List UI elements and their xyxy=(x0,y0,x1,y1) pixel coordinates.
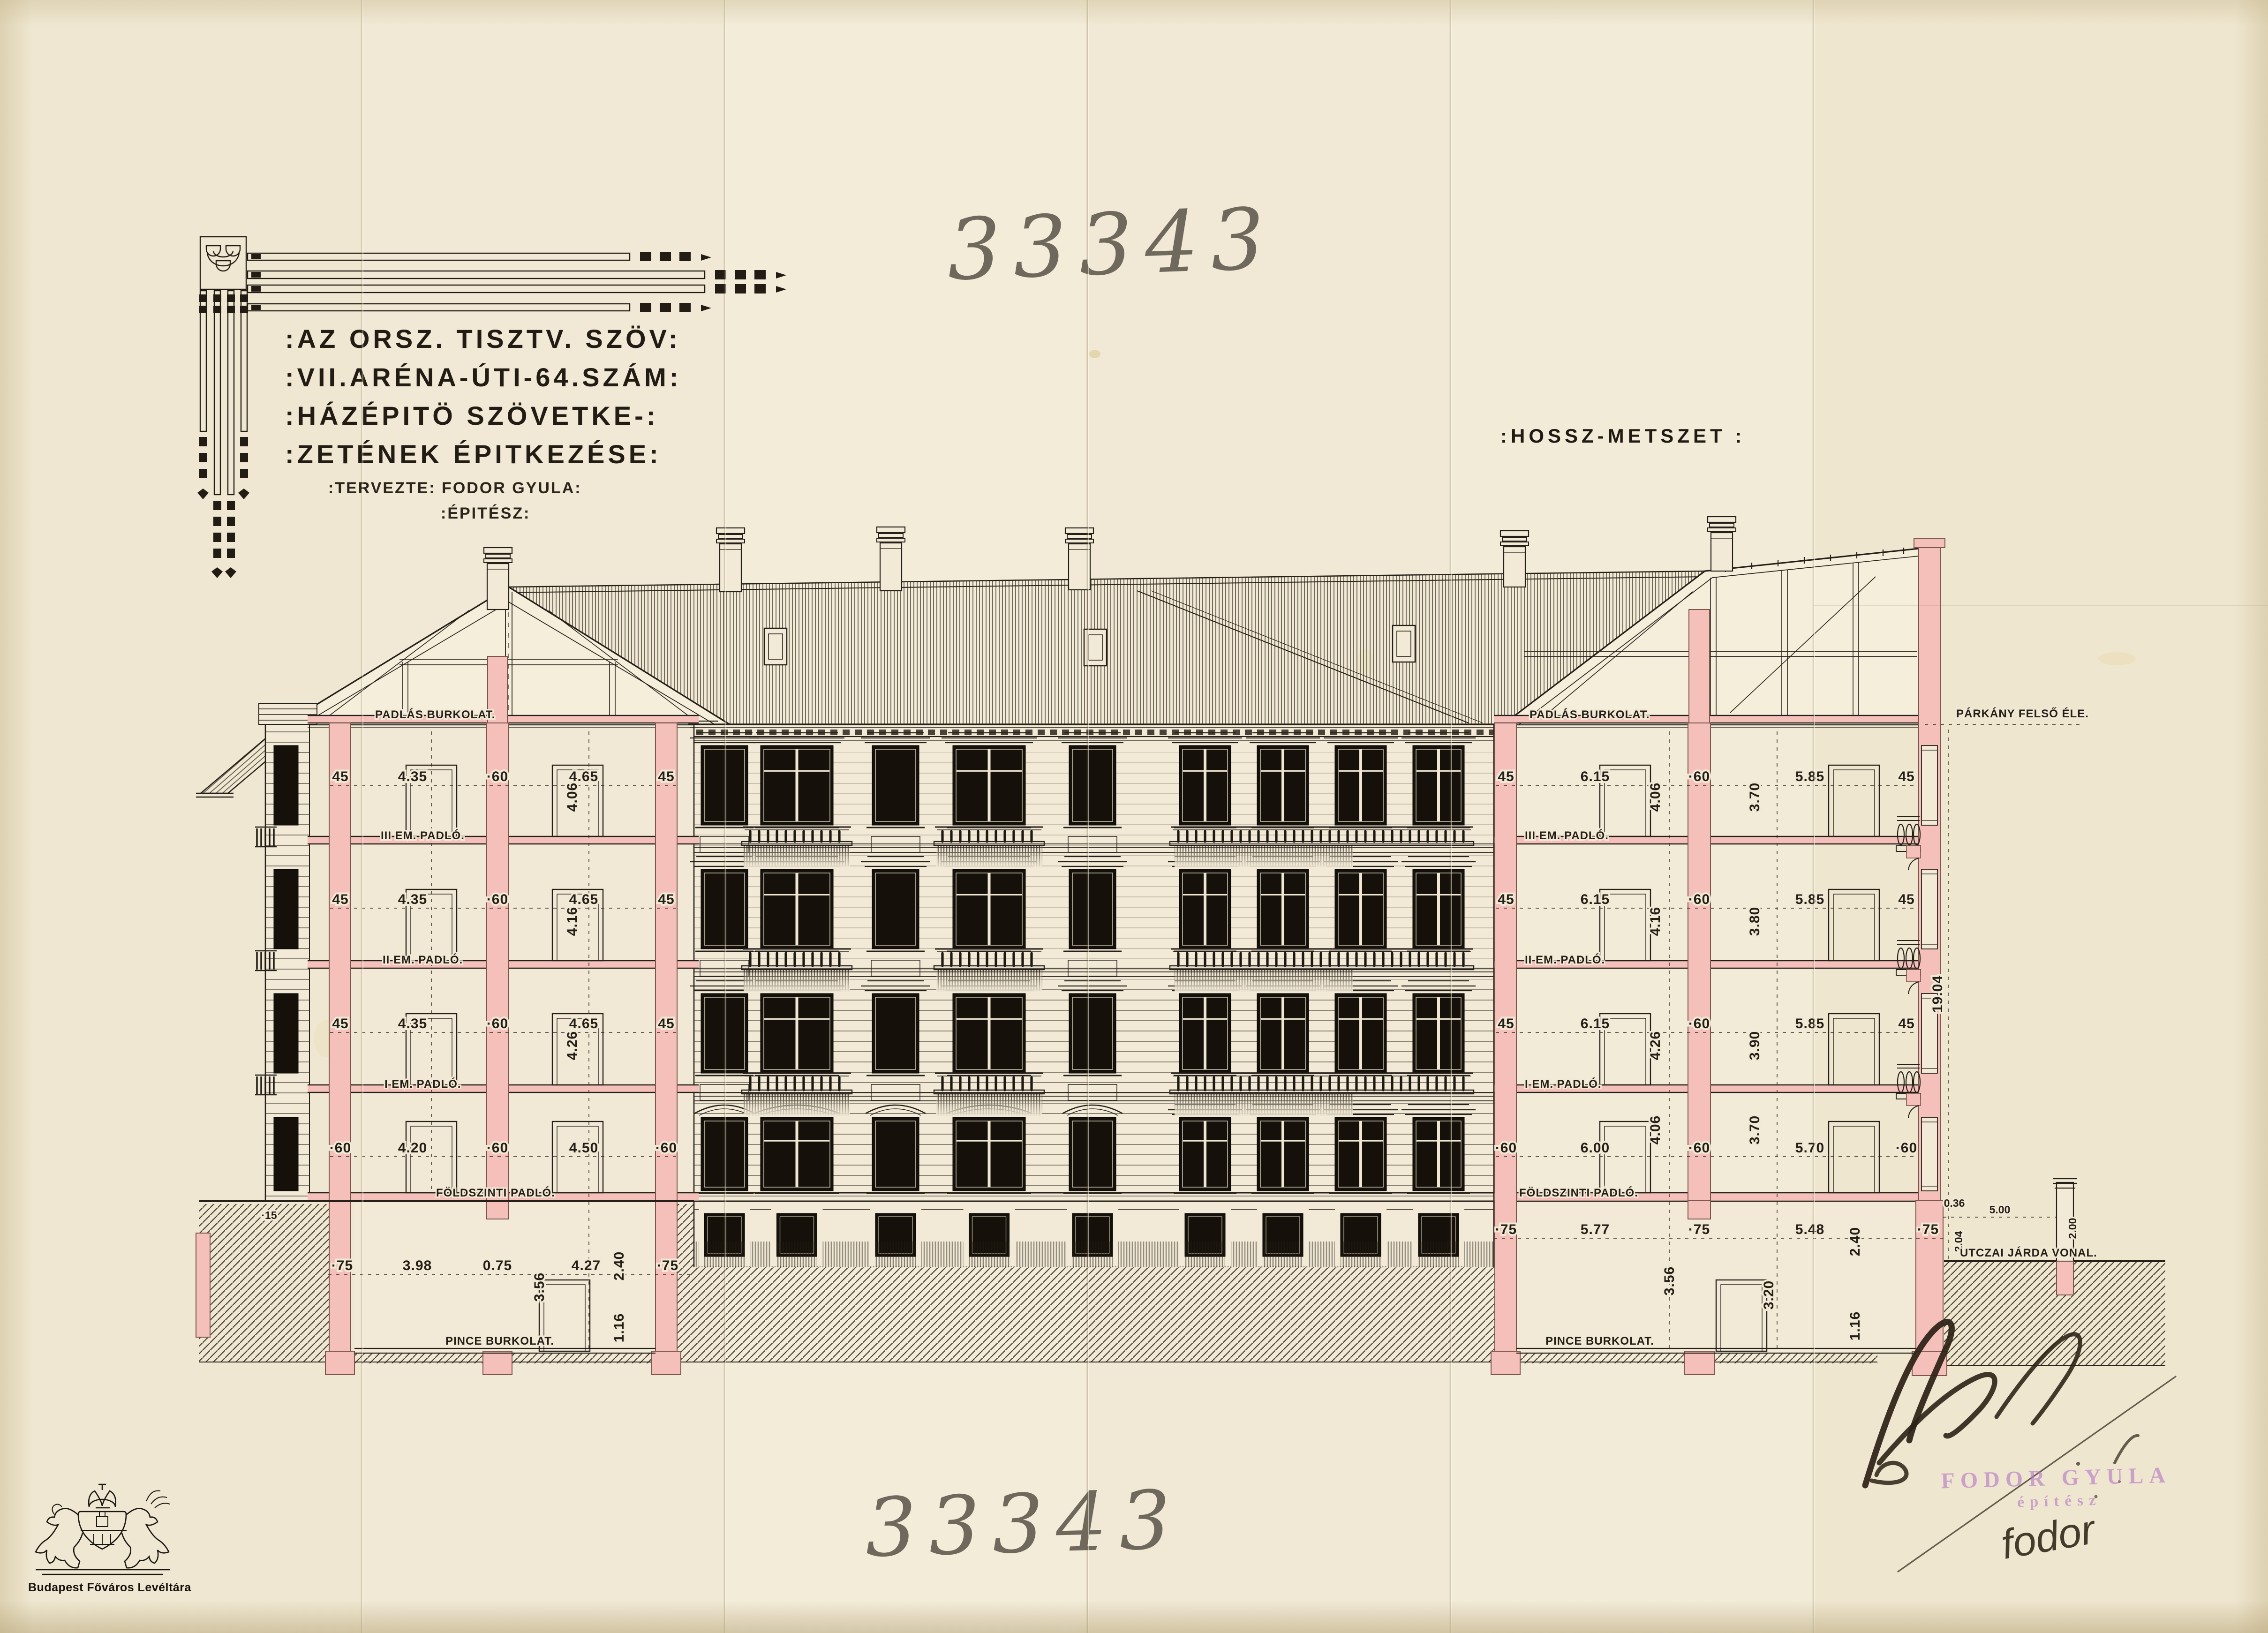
floor-label: PADLÁS BURKOLAT. xyxy=(375,708,495,721)
dim: ·60 xyxy=(1688,1016,1710,1031)
dim: 4.35 xyxy=(398,892,427,907)
dim: 4.35 xyxy=(398,1016,427,1031)
chimney xyxy=(1500,531,1529,587)
facade-window xyxy=(942,981,1037,1076)
facade-window xyxy=(866,1105,926,1267)
facade-window xyxy=(749,981,844,1076)
dim: 6.15 xyxy=(1581,1016,1610,1031)
sidewalk-label: UTCZAI JÁRDA VONAL. xyxy=(1960,1246,2097,1259)
facade-window xyxy=(1168,857,1242,951)
facade-window xyxy=(749,733,844,828)
dim: 45 xyxy=(332,769,348,784)
dim: ·75 xyxy=(1917,1222,1939,1237)
dim: 3.90 xyxy=(1747,1031,1763,1060)
dim: ·60 xyxy=(1896,1140,1917,1156)
dim: 4.06 xyxy=(565,783,580,812)
title-line-2: :VII.ARÉNA-ÚTI-64.SZÁM: xyxy=(285,362,681,392)
floor-label: FÖLDSZINTI PADLÓ. xyxy=(436,1186,555,1199)
title-role: :ÉPITÉSZ: xyxy=(441,504,530,522)
facade-window xyxy=(1062,1105,1123,1267)
dim: 5.77 xyxy=(1581,1222,1610,1237)
dim: 0.75 xyxy=(483,1258,512,1273)
floor-label: PINCE BURKOLAT. xyxy=(1545,1335,1654,1347)
floor-label: PINCE BURKOLAT. xyxy=(445,1335,554,1347)
dim: 5.85 xyxy=(1795,892,1824,907)
dim: ·60 xyxy=(487,1140,508,1156)
archive-number-top: 33343 xyxy=(946,190,1278,299)
dim: 4.65 xyxy=(569,892,598,907)
dim: 3.98 xyxy=(403,1258,432,1273)
wall-window-slot xyxy=(1921,745,1937,825)
facade-window xyxy=(1246,857,1320,951)
dim: 3.56 xyxy=(532,1272,547,1302)
facade-window xyxy=(1401,857,1476,951)
dim: 4.27 xyxy=(572,1258,601,1273)
dim: 6.15 xyxy=(1581,892,1610,907)
floor-label: FÖLDSZINTI PADLÓ. xyxy=(1519,1186,1638,1199)
dim: 45 xyxy=(1498,892,1514,907)
facade-window xyxy=(1324,857,1398,951)
facade-window xyxy=(1324,981,1398,1076)
dim: 3.70 xyxy=(1747,1115,1763,1144)
chimney xyxy=(1708,517,1736,571)
dim: ·60 xyxy=(1688,769,1710,784)
dim: 45 xyxy=(1898,1016,1914,1031)
floor-label: PADLÁS BURKOLAT. xyxy=(1530,708,1650,721)
dim: ·60 xyxy=(487,769,508,784)
dim: 45 xyxy=(1498,1016,1514,1031)
dim: ·75 xyxy=(1495,1222,1517,1237)
left-facade-window xyxy=(274,869,298,949)
archive-number-bottom: 33343 xyxy=(864,1473,1184,1575)
dim: ·60 xyxy=(330,1140,351,1156)
dim: 4.26 xyxy=(565,1031,580,1060)
dim: 4.65 xyxy=(569,1016,598,1031)
dim: 4.50 xyxy=(569,1140,598,1156)
dim: 5.70 xyxy=(1795,1140,1824,1156)
dim: 5.48 xyxy=(1795,1222,1824,1237)
dim: ·60 xyxy=(487,892,508,907)
dim: ·60 xyxy=(1688,1140,1710,1156)
left-facade-window xyxy=(274,745,298,825)
dim: 5.85 xyxy=(1795,1016,1824,1031)
dim: 3.20 xyxy=(1761,1280,1777,1309)
title-line-3: :HÁZÉPITÖ SZÖVETKE-: xyxy=(285,401,658,430)
dim: 4.35 xyxy=(398,769,427,784)
dim: ·75 xyxy=(332,1258,353,1273)
facade-window xyxy=(1324,733,1398,828)
paper-stain xyxy=(1089,350,1100,358)
facade-window xyxy=(942,733,1037,828)
cut-wall xyxy=(1495,723,1516,1353)
facade-window xyxy=(1401,981,1476,1076)
dim: ·75 xyxy=(1688,1222,1710,1237)
boundary-pier xyxy=(196,1233,210,1337)
floor-label: I EM. PADLÓ. xyxy=(384,1077,461,1091)
left-basement-room xyxy=(354,1200,656,1353)
floor-label: I EM. PADLÓ. xyxy=(1525,1077,1602,1091)
title-line-4: :ZETÉNEK ÉPITKEZÉSE: xyxy=(285,439,662,469)
dim: 2.40 xyxy=(611,1251,627,1280)
dim: ·60 xyxy=(487,1016,508,1031)
facade-window xyxy=(1246,733,1320,828)
left-facade-window xyxy=(274,1117,298,1191)
scanned-architectural-drawing: :AZ ORSZ. TISZTV. SZÖV: :VII.ARÉNA-ÚTI-6… xyxy=(0,0,2268,1633)
dim: 4.16 xyxy=(1648,907,1663,936)
archive-logo-caption: Budapest Főváros Levéltára xyxy=(28,1581,191,1594)
dim: 4.65 xyxy=(569,769,598,784)
wall-window-slot xyxy=(1921,1117,1937,1191)
dim: ·15 xyxy=(261,1209,277,1221)
dim: 4.06 xyxy=(1648,1115,1663,1144)
left-facade-window xyxy=(274,993,298,1073)
drawing-canvas: :AZ ORSZ. TISZTV. SZÖV: :VII.ARÉNA-ÚTI-6… xyxy=(0,0,2268,1633)
facade-window xyxy=(1246,981,1320,1076)
chimney xyxy=(484,548,512,610)
dim: 4.16 xyxy=(565,907,580,936)
dim: 6.15 xyxy=(1581,769,1610,784)
dim: 5.00 xyxy=(1989,1204,2011,1216)
dim: ·60 xyxy=(1688,892,1710,907)
dim: 3.70 xyxy=(1747,783,1763,812)
facade-window xyxy=(1401,733,1476,828)
section-type-label: :HOSSZ-METSZET : xyxy=(1500,425,1745,447)
floor-label: III EM. PADLÓ. xyxy=(1525,829,1609,842)
dim: 45 xyxy=(332,892,348,907)
cut-wall xyxy=(1688,723,1710,1200)
floor-label: III EM. PADLÓ. xyxy=(381,829,465,842)
dim: 5.85 xyxy=(1795,769,1824,784)
dim: 45 xyxy=(658,1016,674,1031)
dim: 4.26 xyxy=(1648,1031,1663,1060)
dim: 4.20 xyxy=(398,1140,427,1156)
dim: 1.16 xyxy=(1847,1311,1863,1340)
paper-stain xyxy=(2098,652,2136,665)
wall-window-slot xyxy=(1921,869,1937,949)
cut-wall xyxy=(487,723,508,1200)
facade-window xyxy=(749,857,844,951)
dim: ·60 xyxy=(1495,1140,1517,1156)
dim: ·60 xyxy=(656,1140,677,1156)
floor-label: II EM. PADLÓ. xyxy=(1525,953,1605,966)
dim: 45 xyxy=(332,1016,348,1031)
attic-flue xyxy=(1689,610,1710,723)
chimney xyxy=(716,528,745,592)
floor-label: II EM. PADLÓ. xyxy=(383,953,463,966)
courtyard-facade xyxy=(688,724,1500,1267)
dim: 0.36 xyxy=(1944,1197,1965,1209)
dim: 3.80 xyxy=(1747,907,1763,936)
title-designer: :TERVEZTE: FODOR GYULA: xyxy=(328,479,582,497)
dim: 45 xyxy=(1898,769,1914,784)
dim: ·75 xyxy=(657,1258,678,1273)
dim: 45 xyxy=(1498,769,1514,784)
dim-total-height: 19.04 xyxy=(1930,975,1945,1013)
dim: 45 xyxy=(1898,892,1914,907)
dim: 2.40 xyxy=(1847,1227,1863,1256)
chimney xyxy=(877,527,905,591)
facade-window xyxy=(1168,733,1242,828)
facade-window xyxy=(1168,981,1242,1076)
dim: 45 xyxy=(658,769,674,784)
facade-window xyxy=(942,857,1037,951)
dim: 2.00 xyxy=(2066,1218,2079,1239)
dim: 1.16 xyxy=(611,1313,627,1342)
title-line-1: :AZ ORSZ. TISZTV. SZÖV: xyxy=(285,324,680,354)
dim: 4.06 xyxy=(1648,783,1663,812)
dim: 6.00 xyxy=(1581,1140,1610,1156)
dim: 3.56 xyxy=(1662,1266,1677,1295)
dim: 45 xyxy=(658,892,674,907)
cornice-label: PÁRKÁNY FELSŐ ÉLE. xyxy=(1956,707,2089,720)
